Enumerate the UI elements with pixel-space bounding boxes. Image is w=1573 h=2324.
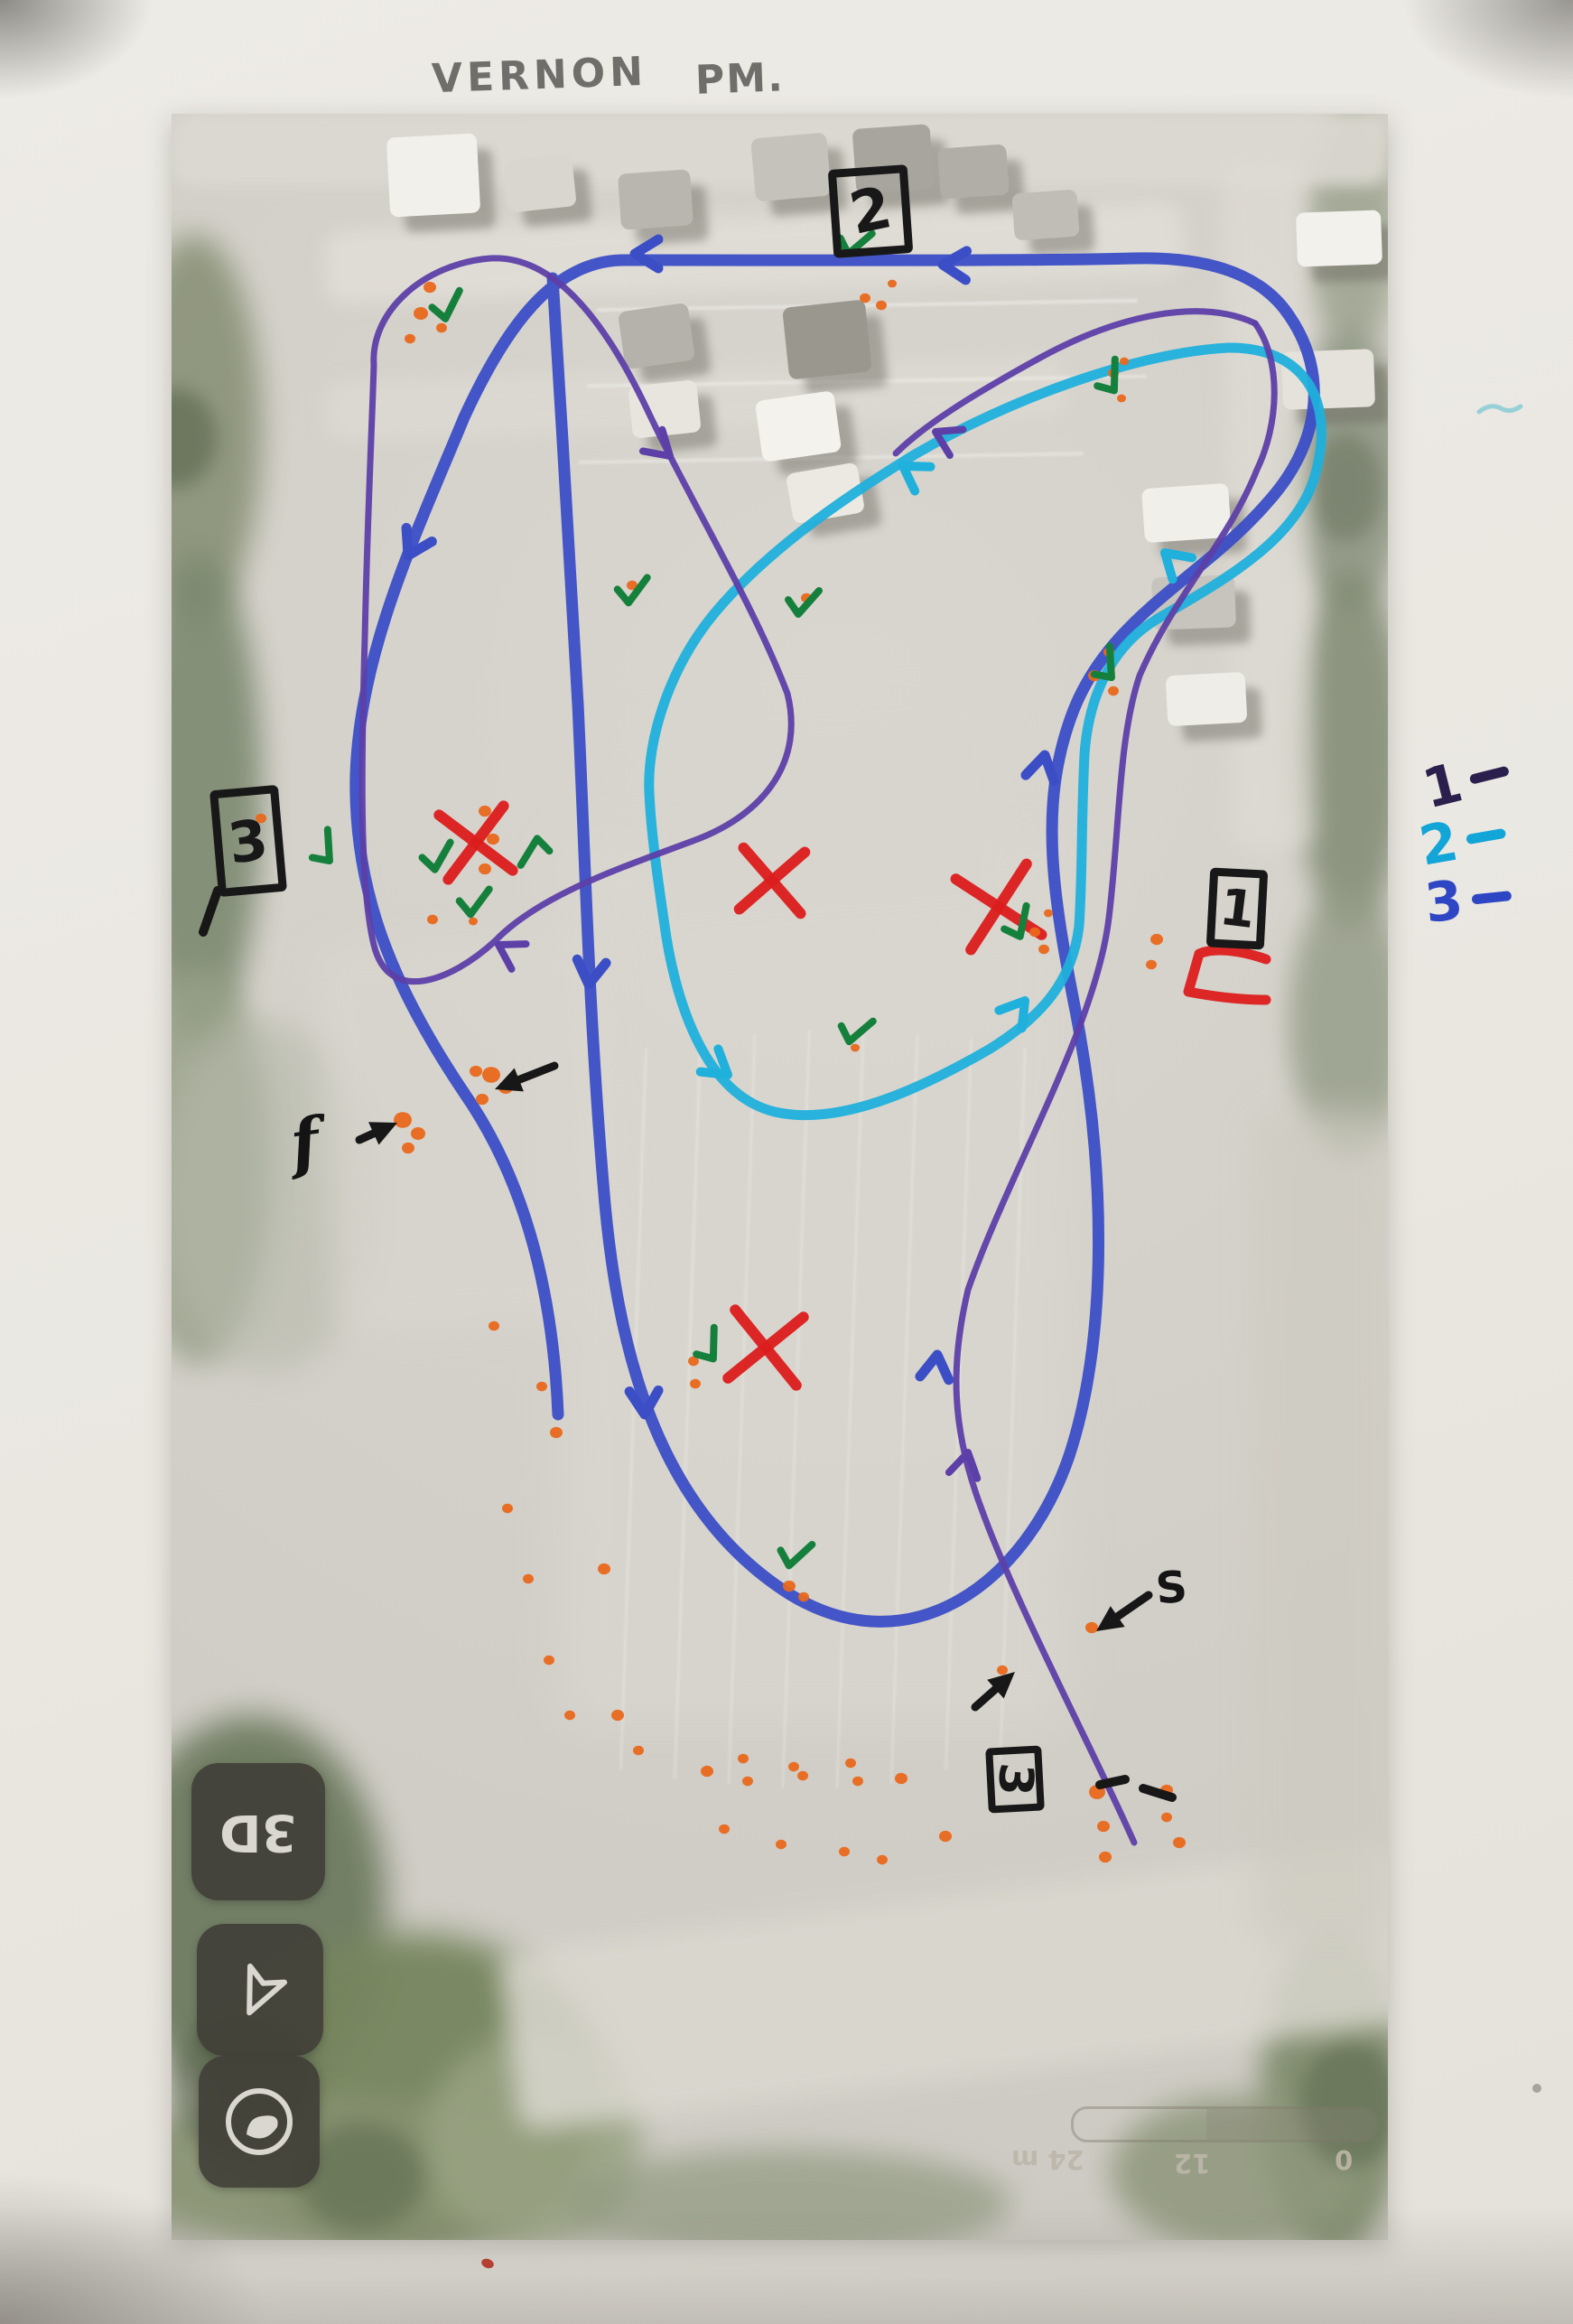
teal-margin-scribble bbox=[1479, 406, 1521, 412]
paper-corner-shadow-tr bbox=[1401, 0, 1573, 99]
parked-car bbox=[750, 132, 832, 201]
legend-3-dash bbox=[1471, 891, 1512, 905]
legend-item-2: 2 bbox=[1416, 806, 1511, 874]
control-box-3-digit: 3 bbox=[225, 806, 273, 876]
paper-bottom-shadow bbox=[0, 2207, 1573, 2324]
control-box-2-digit: 2 bbox=[844, 174, 898, 248]
handwritten-session-label: PM. bbox=[694, 54, 785, 103]
map-scale-bar bbox=[1071, 2106, 1378, 2142]
parked-car bbox=[503, 154, 577, 213]
map-globe-button[interactable] bbox=[199, 2056, 320, 2188]
paper-corner-shadow-tl bbox=[0, 0, 154, 99]
legend-1-dash bbox=[1468, 765, 1509, 784]
parked-car bbox=[1296, 210, 1382, 266]
satellite-map-print: 3D 24 m 12 0 bbox=[172, 114, 1388, 2240]
legend-3-digit: 3 bbox=[1422, 873, 1466, 931]
parked-car bbox=[782, 299, 872, 379]
legend-1-digit: 1 bbox=[1418, 755, 1467, 817]
terrain-layer bbox=[172, 114, 1388, 2240]
scale-label-24m: 24 m bbox=[1011, 2144, 1084, 2175]
parked-car bbox=[628, 379, 702, 439]
map-navigation-button[interactable] bbox=[197, 1924, 323, 2056]
pavement-strip bbox=[1255, 1111, 1388, 1942]
parked-car bbox=[1166, 672, 1248, 727]
parked-car bbox=[786, 462, 866, 524]
parked-car bbox=[1281, 349, 1375, 410]
pavement-strip bbox=[578, 452, 1084, 464]
map-3d-button[interactable]: 3D bbox=[191, 1763, 325, 1900]
map-3d-label: 3D bbox=[219, 1803, 296, 1862]
letter-s-label: S bbox=[1154, 1562, 1189, 1615]
parked-car bbox=[755, 390, 842, 462]
parked-car bbox=[1011, 190, 1079, 241]
photo-of-annotated-orienteering-map: VERNON PM. 3D 24 m 12 0 bbox=[0, 0, 1573, 2324]
control-box-3: 3 bbox=[209, 785, 287, 897]
parked-car bbox=[386, 133, 480, 217]
scale-label-12: 12 bbox=[1174, 2148, 1210, 2179]
legend-2-digit: 2 bbox=[1416, 815, 1463, 874]
pavement-strip bbox=[624, 692, 1019, 953]
legend-item-3: 3 bbox=[1422, 868, 1513, 931]
navigation-arrow-icon bbox=[219, 1949, 301, 2030]
parked-car bbox=[618, 303, 695, 369]
control-box-finish: 3 bbox=[985, 1745, 1045, 1813]
parked-car bbox=[937, 144, 1010, 199]
control-box-2: 2 bbox=[828, 164, 914, 258]
globe-icon bbox=[218, 2080, 301, 2163]
control-box-finish-digit: 3 bbox=[987, 1761, 1043, 1797]
parked-car bbox=[618, 169, 693, 229]
tree-blob bbox=[1309, 434, 1382, 542]
control-box-1: 1 bbox=[1206, 867, 1269, 949]
legend-2-dash bbox=[1466, 827, 1506, 844]
handwritten-location-title: VERNON bbox=[431, 49, 648, 102]
parked-car bbox=[1141, 483, 1232, 544]
parked-car bbox=[1151, 574, 1236, 630]
control-box-1-digit: 1 bbox=[1216, 877, 1259, 939]
scale-bar-fill bbox=[1206, 2109, 1375, 2140]
scale-label-0: 0 bbox=[1335, 2144, 1353, 2175]
gray-paper-speck bbox=[1532, 2084, 1541, 2093]
pavement-strip bbox=[315, 932, 624, 1335]
